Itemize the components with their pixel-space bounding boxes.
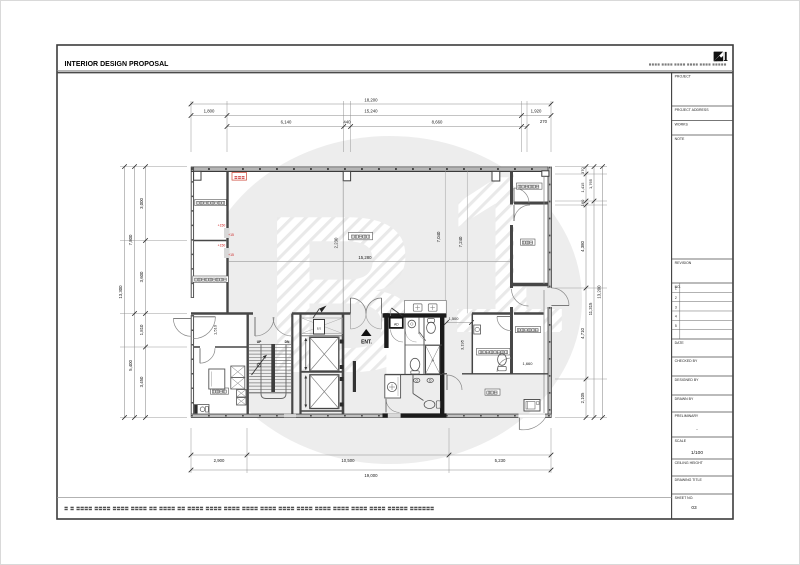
svg-text:7,240: 7,240 <box>458 236 463 247</box>
svg-text:SHEET NO.: SHEET NO. <box>675 496 694 500</box>
svg-text:+150: +150 <box>218 244 226 248</box>
svg-text:SCALE: SCALE <box>675 439 687 443</box>
svg-text:CEILING HEIGHT: CEILING HEIGHT <box>675 461 704 465</box>
svg-text:1,800: 1,800 <box>204 109 215 114</box>
svg-text:2,900: 2,900 <box>214 458 225 463</box>
svg-text:15,240: 15,240 <box>364 109 378 114</box>
svg-text:PROJECT ADDRESS: PROJECT ADDRESS <box>675 108 710 112</box>
svg-text:7,040: 7,040 <box>436 231 441 242</box>
svg-text:1,765: 1,765 <box>588 178 593 189</box>
svg-text:7,800: 7,800 <box>128 234 133 245</box>
svg-text:AD: AD <box>394 322 399 326</box>
svg-text:REVISION: REVISION <box>675 261 692 265</box>
svg-text:2: 2 <box>675 296 677 300</box>
svg-text:440: 440 <box>343 120 351 125</box>
svg-text:CHECKED BY: CHECKED BY <box>675 359 698 363</box>
svg-text:11,315: 11,315 <box>588 302 593 315</box>
svg-text:13,200: 13,200 <box>597 285 602 299</box>
svg-text:UP: UP <box>257 340 262 344</box>
svg-text:5,230: 5,230 <box>495 458 506 463</box>
svg-text:6,140: 6,140 <box>281 120 292 125</box>
svg-text:INTERIOR DESIGN PROPOSAL: INTERIOR DESIGN PROPOSAL <box>65 61 170 68</box>
svg-text:370: 370 <box>580 166 585 173</box>
svg-text:1,920: 1,920 <box>531 109 542 114</box>
svg-text:270: 270 <box>540 119 548 124</box>
svg-text:5: 5 <box>675 324 677 328</box>
svg-text:1,500: 1,500 <box>448 316 459 321</box>
svg-text:DN: DN <box>285 340 290 344</box>
svg-text:5,400: 5,400 <box>128 360 133 371</box>
svg-text:1: 1 <box>675 287 677 291</box>
svg-text:4,710: 4,710 <box>580 328 585 339</box>
svg-text:3,195: 3,195 <box>460 339 465 350</box>
svg-text:ENT.: ENT. <box>361 340 372 346</box>
svg-text:13,300: 13,300 <box>118 285 123 299</box>
svg-text:4: 4 <box>675 315 677 319</box>
svg-text:19,000: 19,000 <box>364 473 378 478</box>
svg-text:NOTE: NOTE <box>675 137 685 141</box>
svg-text:2,105: 2,105 <box>580 392 585 403</box>
svg-text:PRELIMINARY: PRELIMINARY <box>675 414 699 418</box>
svg-text:3,600: 3,600 <box>139 271 144 282</box>
svg-text:DATE: DATE <box>675 341 685 345</box>
svg-text:1,660: 1,660 <box>522 361 533 366</box>
svg-text:1,510: 1,510 <box>213 324 218 335</box>
svg-text:1,415: 1,415 <box>580 182 585 193</box>
svg-text:PROJECT: PROJECT <box>675 75 692 79</box>
svg-text:DRAWING TITLE: DRAWING TITLE <box>675 478 703 482</box>
svg-text:3,000: 3,000 <box>139 198 144 209</box>
svg-text:3: 3 <box>675 305 677 309</box>
svg-text:2,230: 2,230 <box>334 237 339 248</box>
svg-text:1/100: 1/100 <box>691 450 703 456</box>
svg-text:+15: +15 <box>228 253 234 257</box>
svg-text:+15: +15 <box>228 233 234 237</box>
svg-text:WORKS: WORKS <box>675 123 689 127</box>
svg-text:10,500: 10,500 <box>341 458 355 463</box>
svg-text:18,200: 18,200 <box>364 98 378 103</box>
svg-text:4,380: 4,380 <box>580 241 585 252</box>
svg-text:DRAWN BY: DRAWN BY <box>675 397 694 401</box>
svg-text:+150: +150 <box>218 224 226 228</box>
svg-text:E/S: E/S <box>317 327 321 331</box>
svg-text:03: 03 <box>691 505 697 511</box>
svg-text:3,450: 3,450 <box>139 376 144 387</box>
svg-text:15,280: 15,280 <box>358 255 372 260</box>
svg-text:DESIGNED BY: DESIGNED BY <box>675 378 700 382</box>
svg-text:160: 160 <box>580 199 585 206</box>
svg-text:1,810: 1,810 <box>139 324 144 335</box>
svg-text:8,660: 8,660 <box>432 120 443 125</box>
